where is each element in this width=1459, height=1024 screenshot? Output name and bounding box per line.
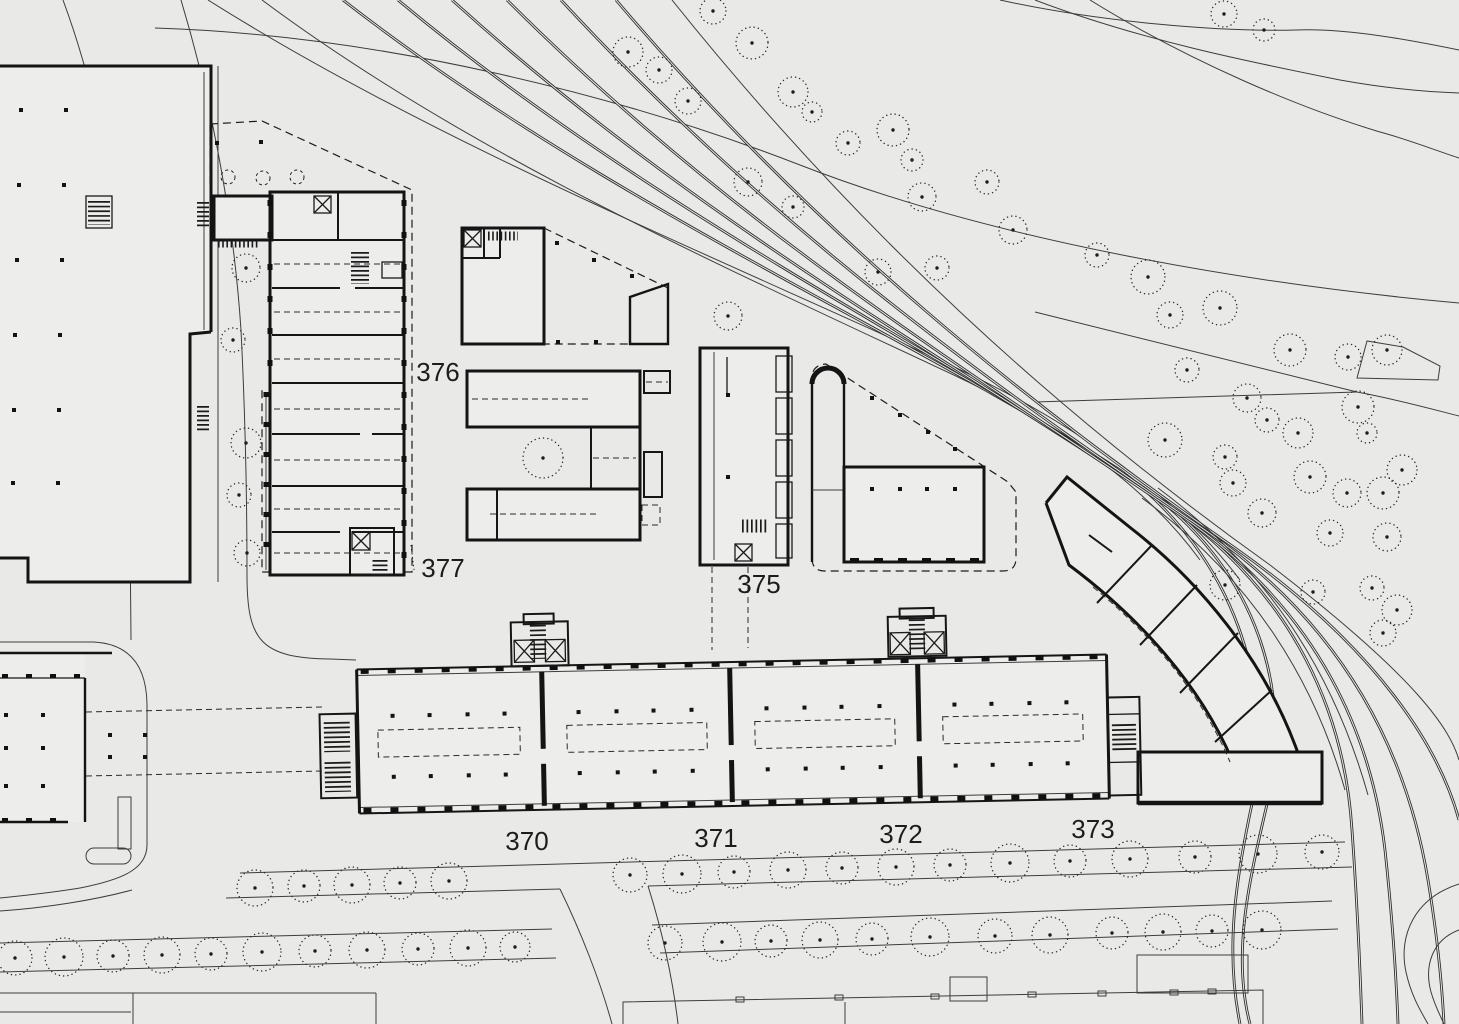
building-northwest xyxy=(0,66,218,582)
site-plan-page: 376 377 375 370 371 372 373 xyxy=(0,0,1459,1024)
building-label-377: 377 xyxy=(421,553,464,583)
site-plan-drawing: 376 377 375 370 371 372 373 xyxy=(0,0,1459,1024)
building-label-376: 376 xyxy=(416,357,459,387)
bay-division xyxy=(542,672,545,806)
building-label-371: 371 xyxy=(694,823,737,853)
building-label-372: 372 xyxy=(879,819,922,849)
bay-division xyxy=(918,664,921,798)
building-label-370: 370 xyxy=(505,826,548,856)
building-label-373: 373 xyxy=(1071,814,1114,844)
bay-division xyxy=(730,668,733,802)
building-label-375: 375 xyxy=(737,569,780,599)
